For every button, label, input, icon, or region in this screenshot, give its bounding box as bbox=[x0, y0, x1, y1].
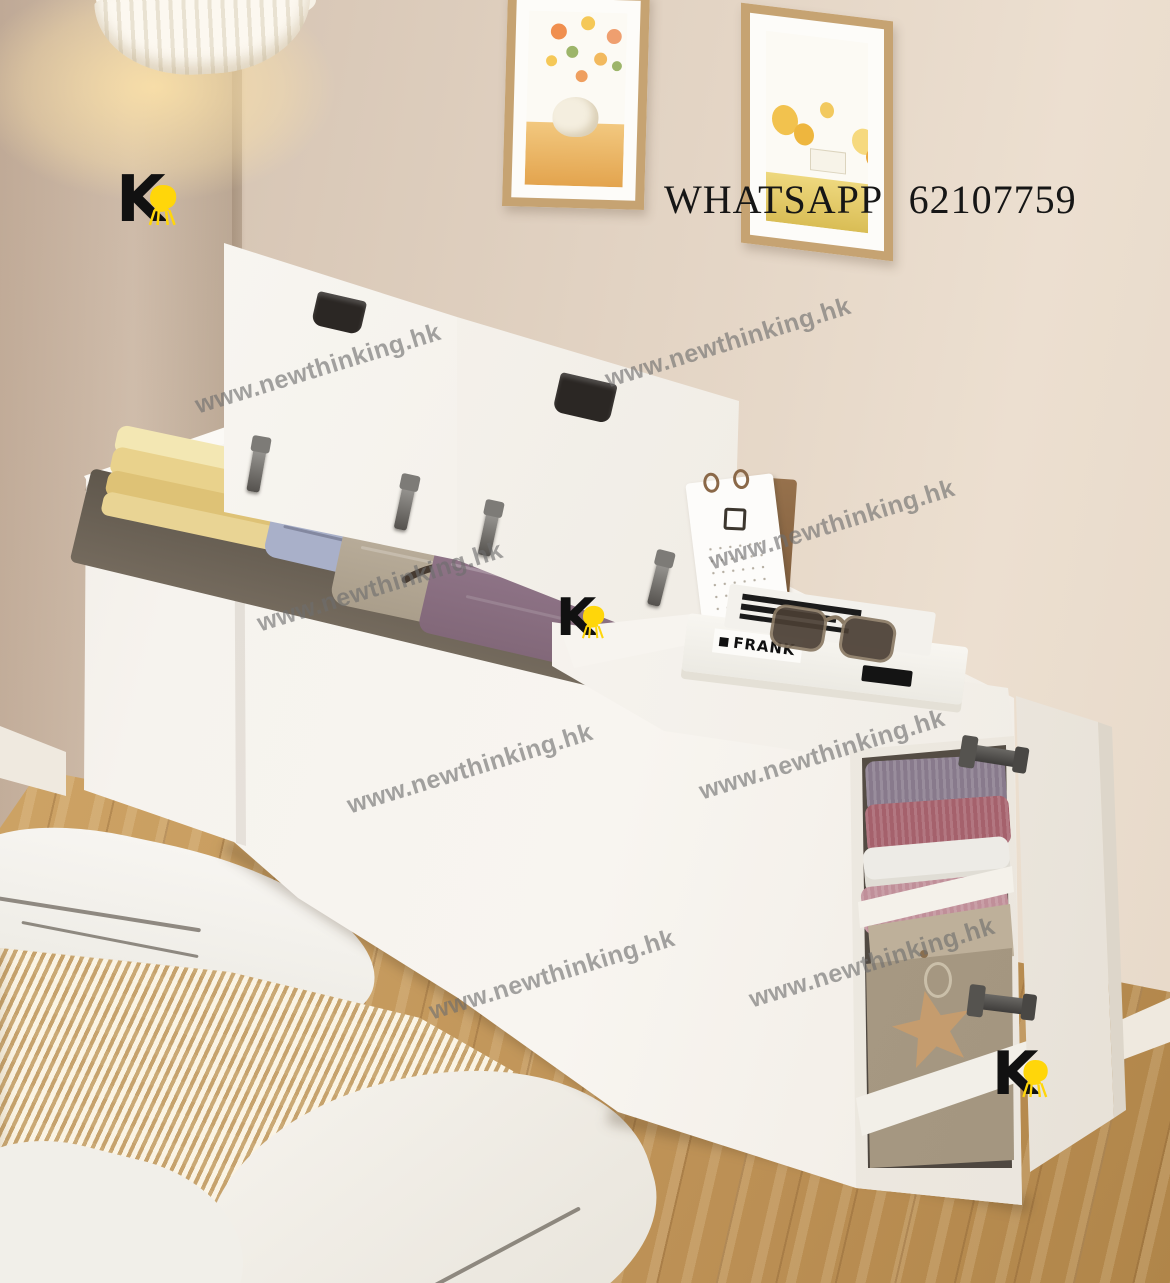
storage-box-loop bbox=[924, 962, 952, 998]
whatsapp-contact: WHATSAPP 62107759 bbox=[664, 176, 1077, 223]
door-hinge bbox=[973, 993, 1033, 1016]
chair-icon bbox=[1018, 1059, 1053, 1098]
brand-logo: K bbox=[556, 592, 596, 644]
flower-artwork bbox=[525, 11, 628, 188]
brand-logo: K bbox=[992, 1044, 1039, 1104]
brand-logo: K bbox=[116, 168, 166, 232]
wall-art-flowers bbox=[502, 0, 650, 210]
chair-icon bbox=[144, 184, 182, 226]
chair-icon bbox=[578, 605, 609, 639]
bedroom-product-photo: FRANK K K K bbox=[0, 0, 1170, 1283]
